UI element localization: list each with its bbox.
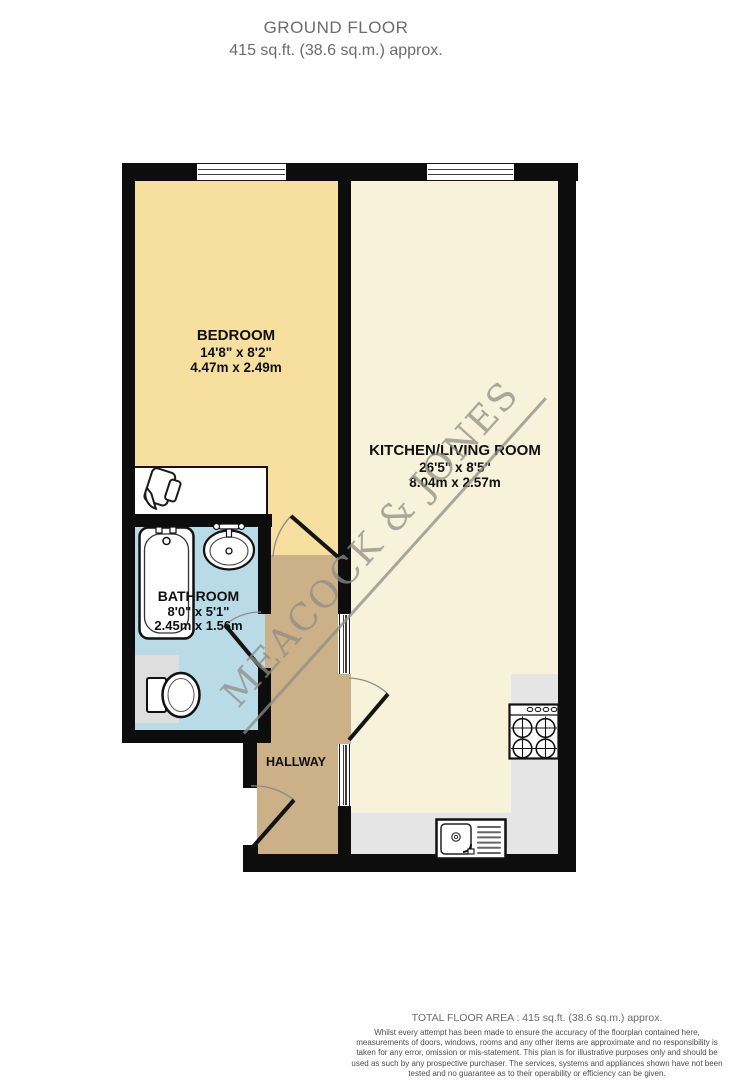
total-floor-area: TOTAL FLOOR AREA : 415 sq.ft. (38.6 sq.m… xyxy=(347,1012,727,1024)
bedroom-door-swing xyxy=(273,516,338,557)
bedroom-label: BEDROOM 14'8" x 8'2" 4.47m x 2.49m xyxy=(136,328,336,375)
hallway-label: HALLWAY xyxy=(246,755,346,769)
room-name: BATHROOM xyxy=(136,589,261,605)
front-door-swing xyxy=(251,786,294,848)
room-size-metric: 2.45m x 1.56m xyxy=(136,619,261,634)
kitchen-door-swing xyxy=(349,678,388,740)
bathroom-label: BATHROOM 8'0" x 5'1" 2.45m x 1.56m xyxy=(136,589,261,634)
room-name: BEDROOM xyxy=(136,328,336,345)
disclaimer-text: Whilst every attempt has been made to en… xyxy=(347,1028,727,1079)
room-size-imperial: 14'8" x 8'2" xyxy=(136,345,336,360)
room-name: HALLWAY xyxy=(246,755,346,769)
room-size-metric: 4.47m x 2.49m xyxy=(136,360,336,375)
floorplan-page: GROUND FLOOR 415 sq.ft. (38.6 sq.m.) app… xyxy=(0,0,741,1080)
plan-footer: TOTAL FLOOR AREA : 415 sq.ft. (38.6 sq.m… xyxy=(347,1012,727,1080)
room-size-imperial: 8'0" x 5'1" xyxy=(136,605,261,620)
